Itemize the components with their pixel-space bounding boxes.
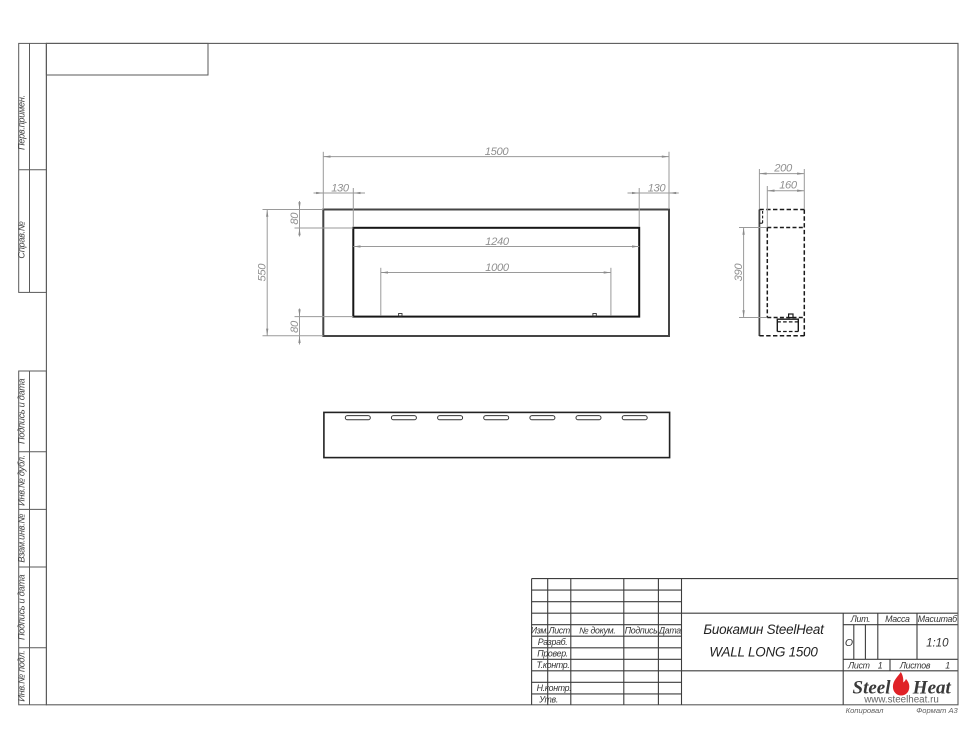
svg-text:Справ.№: Справ.№ — [17, 221, 27, 258]
svg-text:130: 130 — [648, 183, 667, 195]
svg-text:Лит.: Лит. — [850, 614, 870, 624]
svg-text:1000: 1000 — [485, 262, 510, 274]
svg-text:Инв.№ дубл.: Инв.№ дубл. — [17, 455, 27, 506]
svg-text:550: 550 — [257, 263, 269, 282]
svg-text:Подпись: Подпись — [625, 626, 658, 636]
svg-text:Взам.инв.№: Взам.инв.№ — [17, 513, 27, 562]
svg-text:Подпись и дата: Подпись и дата — [17, 575, 27, 640]
svg-text:390: 390 — [733, 263, 745, 282]
svg-text:Инв.№ подл.: Инв.№ подл. — [17, 651, 27, 702]
svg-text:Дата: Дата — [658, 626, 681, 636]
svg-text:160: 160 — [779, 180, 798, 192]
svg-text:80: 80 — [289, 212, 301, 225]
svg-text:130: 130 — [331, 183, 350, 195]
svg-text:1240: 1240 — [485, 236, 510, 248]
svg-text:№ докум.: № докум. — [579, 626, 615, 636]
svg-text:Копировал: Копировал — [846, 706, 884, 715]
svg-text:1: 1 — [878, 660, 883, 670]
svg-text:Разраб.: Разраб. — [538, 637, 568, 647]
svg-text:Утв.: Утв. — [538, 695, 558, 705]
svg-text:Н.контр.: Н.контр. — [537, 683, 572, 693]
svg-text:Провер.: Провер. — [537, 649, 568, 659]
svg-text:Перв.примен.: Перв.примен. — [17, 95, 27, 150]
svg-text:Изм.: Изм. — [531, 626, 549, 636]
svg-text:Т.контр.: Т.контр. — [536, 660, 569, 670]
svg-text:Лист: Лист — [847, 660, 869, 670]
svg-text:1: 1 — [945, 660, 950, 670]
svg-text:200: 200 — [773, 162, 793, 174]
svg-text:Биокамин SteelHeat: Биокамин SteelHeat — [703, 622, 825, 637]
svg-text:Формат А3: Формат А3 — [916, 706, 958, 715]
svg-text:Подпись и дата: Подпись и дата — [17, 378, 27, 443]
svg-text:1500: 1500 — [485, 146, 510, 158]
svg-text:www.steelheat.ru: www.steelheat.ru — [863, 695, 939, 706]
svg-text:WALL LONG 1500: WALL LONG 1500 — [709, 645, 818, 660]
svg-text:Лист: Лист — [547, 626, 569, 636]
svg-text:Масштаб: Масштаб — [918, 614, 958, 624]
svg-text:О: О — [845, 637, 853, 649]
svg-text:Масса: Масса — [885, 614, 910, 624]
svg-text:1:10: 1:10 — [926, 637, 949, 649]
svg-text:80: 80 — [289, 320, 301, 333]
svg-text:Листов: Листов — [899, 660, 931, 670]
